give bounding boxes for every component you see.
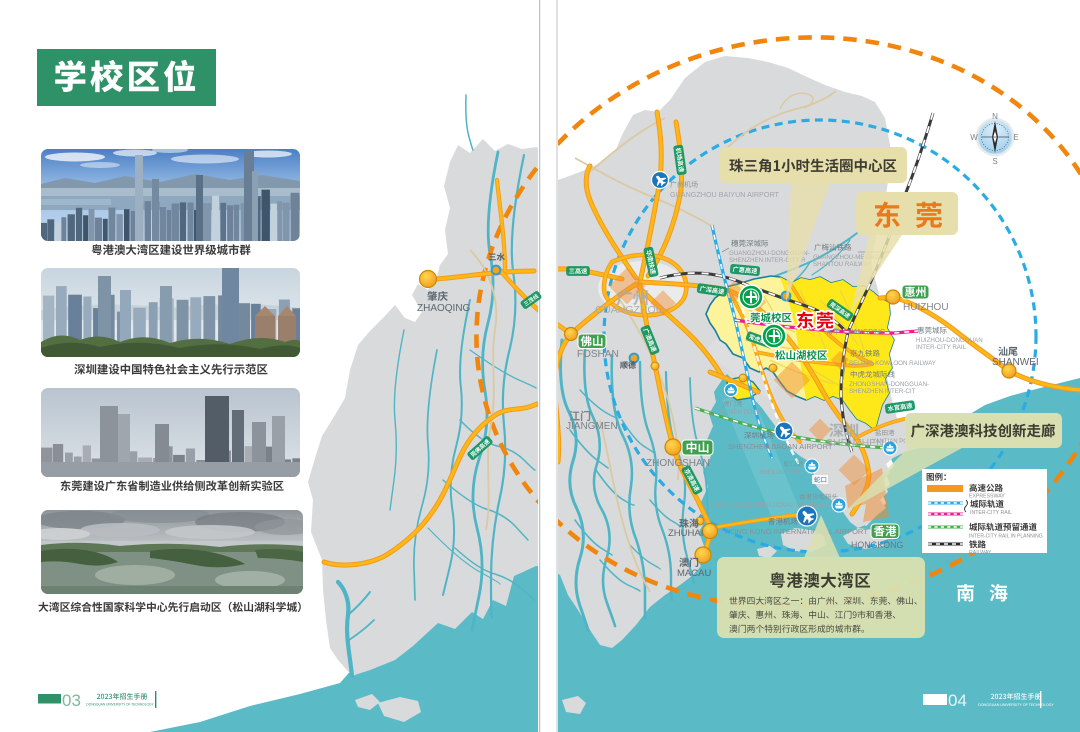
svg-text:SHENZHEN BAOAN AIRPORT: SHENZHEN BAOAN AIRPORT [728,442,833,451]
svg-text:03: 03 [62,691,81,710]
svg-text:DONGGUAN UNIVERSITY OF TECHNOL: DONGGUAN UNIVERSITY OF TECHNOLOGY [86,703,154,707]
svg-text:HUIZHOU-DONGGUAN: HUIZHOU-DONGGUAN [916,337,983,344]
svg-text:EXPRESSWAY: EXPRESSWAY [969,494,1005,500]
svg-text:ZHUHAI: ZHUHAI [668,528,703,539]
svg-text:ZHONGSHAN: ZHONGSHAN [646,458,710,469]
svg-text:HONGKONG: HONGKONG [851,540,903,550]
svg-text:HUMEN PORT: HUMEN PORT [720,410,761,416]
svg-text:04: 04 [948,691,967,710]
svg-text:HONG KONG INTERNATIONAL AIRPOR: HONG KONG INTERNATIONAL AIRPORT [725,527,868,536]
svg-text:HUIZHOU: HUIZHOU [903,302,949,313]
svg-text:ZHONGSHAN-DONGGUAN-: ZHONGSHAN-DONGGUAN- [849,381,929,388]
svg-text:SHANWEI: SHANWEI [992,357,1039,368]
svg-text:DONGGUAN UNIVERSITY OF TECHNOL: DONGGUAN UNIVERSITY OF TECHNOLOGY [978,703,1054,707]
svg-text:CHANGPING: CHANGPING [843,329,885,336]
svg-text:BEIJING-KOWLOON RAILWAY: BEIJING-KOWLOON RAILWAY [849,360,936,367]
svg-text:W: W [970,133,978,142]
svg-text:MACAU: MACAU [677,568,711,579]
svg-text:GUANGZHOU: GUANGZHOU [595,304,663,316]
svg-text:GUANGZHOU BAIYUN AIRPORT: GUANGZHOU BAIYUN AIRPORT [670,190,780,199]
svg-text:E: E [1013,133,1018,142]
svg-text:SHEKOU PORT: SHEKOU PORT [759,470,803,476]
svg-text:RAILWAY: RAILWAY [969,550,992,556]
svg-text:JIANGMEN: JIANGMEN [566,421,618,432]
svg-text:INTER-CITY RAIL IN PLANNING: INTER-CITY RAIL IN PLANNING [969,534,1043,540]
svg-text:HONGKONG INTERNATIONAL TERMINA: HONGKONG INTERNATIONAL TERMINALS [708,503,829,509]
svg-text:ZHAOQING: ZHAOQING [417,303,471,314]
svg-text:FOSHAN: FOSHAN [577,349,619,360]
svg-text:N: N [992,112,998,121]
svg-text:SHENZHEN INTER-CIT: SHENZHEN INTER-CIT [849,388,916,395]
svg-text:S: S [992,157,997,166]
svg-text:INTER-CITY RAIL: INTER-CITY RAIL [916,344,967,351]
svg-text:INTER-CITY RAIL: INTER-CITY RAIL [970,510,1012,516]
